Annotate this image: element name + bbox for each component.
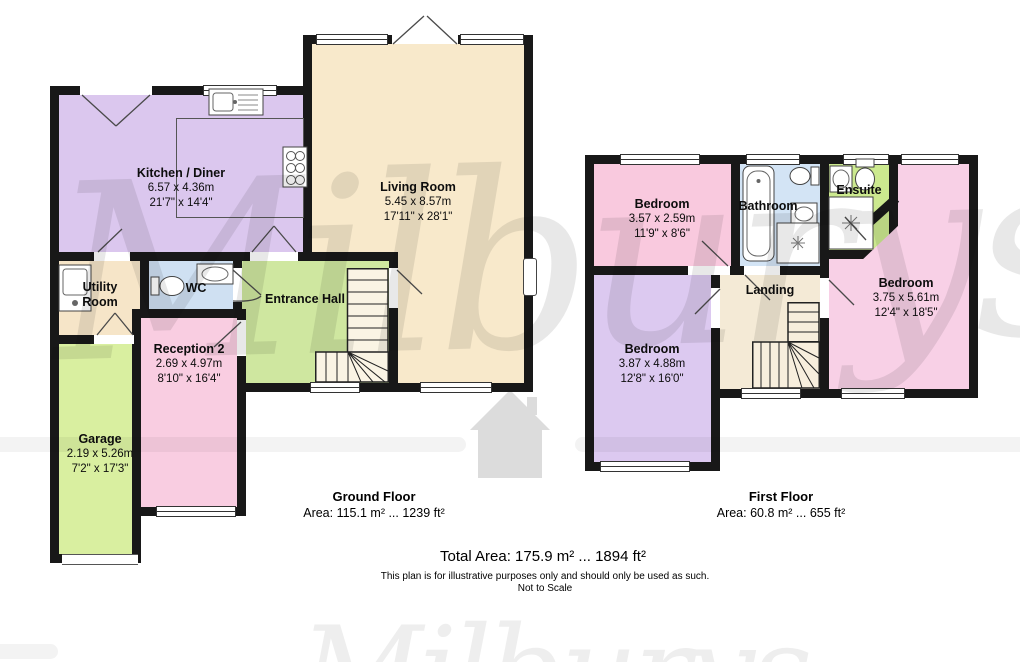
- room-name: Landing: [690, 283, 850, 298]
- disclaimer-text: This plan is for illustrative purposes o…: [270, 571, 820, 582]
- room-dims-ft: 21'7" x 14'4": [91, 196, 271, 211]
- floor-title: First Floor: [661, 489, 901, 505]
- window: [841, 388, 905, 399]
- first-floor-caption: First Floor Area: 60.8 m² ... 655 ft²: [661, 489, 901, 521]
- window: [901, 154, 959, 165]
- room-label-utility: Utility Room: [68, 280, 132, 310]
- floorplan-canvas: Kitchen / Diner 6.57 x 4.36m 21'7" x 14'…: [0, 0, 1020, 662]
- room-label-wc: WC: [170, 281, 222, 296]
- room-name: Ensuite: [799, 183, 919, 198]
- room-dims-m: 3.57 x 2.59m: [572, 212, 752, 227]
- room-dims-ft: 8'10" x 16'4": [99, 372, 279, 387]
- window: [156, 506, 236, 517]
- french-door-opening: [392, 35, 458, 44]
- watermark-text-partial: Milburys: [300, 612, 808, 662]
- floor-title: Ground Floor: [254, 489, 494, 505]
- room-dims-m: 2.19 x 5.26m: [10, 447, 190, 462]
- hob-icon: [282, 146, 308, 188]
- room-name: WC: [170, 281, 222, 296]
- living-room-door-panel: [523, 258, 537, 296]
- room-dims-m: 3.87 x 4.88m: [562, 357, 742, 372]
- window: [620, 154, 700, 165]
- room-dims-ft: 11'9" x 8'6": [572, 227, 752, 242]
- window: [741, 388, 801, 399]
- window: [746, 154, 800, 165]
- room-label-bathroom: Bathroom: [688, 199, 848, 214]
- ground-floor-caption: Ground Floor Area: 115.1 m² ... 1239 ft²: [254, 489, 494, 521]
- room-name: Living Room: [328, 180, 508, 195]
- door-opening: [688, 266, 730, 275]
- total-area-text: Total Area: 175.9 m² ... 1894 ft²: [293, 548, 793, 565]
- room-label-hall: Entrance Hall: [225, 292, 385, 307]
- window: [316, 34, 388, 45]
- window: [420, 382, 492, 393]
- patio-door-opening: [80, 86, 152, 95]
- door-opening: [94, 252, 130, 261]
- watermark-house-logo-icon: [470, 385, 550, 480]
- door-opening: [744, 266, 780, 275]
- floor-area: Area: 115.1 m² ... 1239 ft²: [254, 505, 494, 521]
- room-reception: [132, 309, 246, 516]
- window: [460, 34, 524, 45]
- scale-note-text: Not to Scale: [270, 583, 820, 594]
- watermark-band: [0, 644, 58, 659]
- room-name: Garage: [10, 432, 190, 447]
- room-label-garage: Garage 2.19 x 5.26m 7'2" x 17'3": [10, 432, 190, 477]
- room-name: Reception 2: [99, 342, 279, 357]
- room-label-reception: Reception 2 2.69 x 4.97m 8'10" x 16'4": [99, 342, 279, 387]
- garage-door-opening: [62, 554, 138, 565]
- window: [600, 461, 690, 472]
- shower-icon: [776, 222, 820, 264]
- room-label-bedroom3: Bedroom 3.87 x 4.88m 12'8" x 16'0": [562, 342, 742, 387]
- room-dims-m: 2.69 x 4.97m: [99, 357, 279, 372]
- room-label-living: Living Room 5.45 x 8.57m 17'11" x 28'1": [328, 180, 508, 225]
- door-opening: [250, 252, 298, 261]
- room-dims-ft: 12'8" x 16'0": [562, 372, 742, 387]
- staircase-icon: [752, 302, 820, 389]
- room-label-ensuite: Ensuite: [799, 183, 919, 198]
- room-name: Bathroom: [688, 199, 848, 214]
- room-dims-ft: 7'2" x 17'3": [10, 462, 190, 477]
- room-name: Entrance Hall: [225, 292, 385, 307]
- room-dims-ft: 17'11" x 28'1": [328, 210, 508, 225]
- front-door-window: [310, 382, 360, 393]
- room-dims-m: 6.57 x 4.36m: [91, 181, 271, 196]
- room-name: Bedroom: [562, 342, 742, 357]
- room-dims-ft: 12'4" x 18'5": [816, 306, 996, 321]
- door-opening: [389, 268, 398, 308]
- room-label-landing: Landing: [690, 283, 850, 298]
- staircase-icon: [315, 268, 389, 383]
- room-dims-m: 5.45 x 8.57m: [328, 195, 508, 210]
- room-label-kitchen: Kitchen / Diner 6.57 x 4.36m 21'7" x 14'…: [91, 166, 271, 211]
- room-name: Utility Room: [68, 280, 132, 310]
- room-name: Kitchen / Diner: [91, 166, 271, 181]
- floor-area: Area: 60.8 m² ... 655 ft²: [661, 505, 901, 521]
- kitchen-sink-icon: [208, 88, 264, 116]
